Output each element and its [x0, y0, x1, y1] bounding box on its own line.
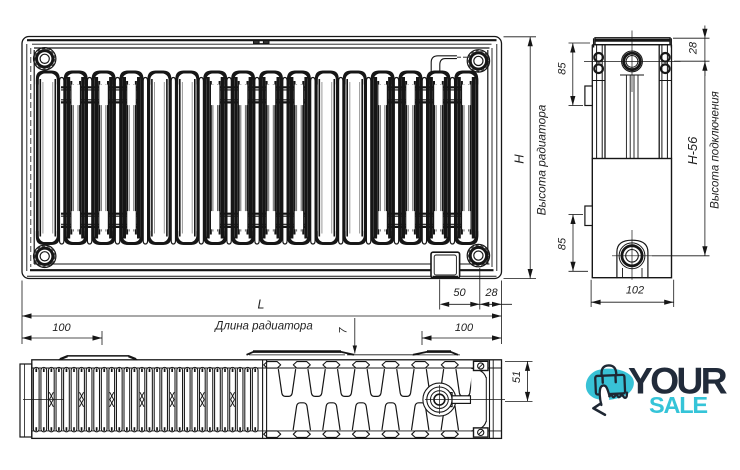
svg-text:H-56: H-56: [685, 136, 700, 165]
svg-text:100: 100: [455, 322, 474, 334]
svg-text:28: 28: [484, 287, 498, 299]
svg-text:51: 51: [511, 371, 523, 383]
svg-text:28: 28: [688, 41, 700, 55]
svg-text:50: 50: [453, 287, 466, 299]
svg-text:7: 7: [338, 327, 350, 334]
svg-text:Высота подключения: Высота подключения: [709, 91, 721, 209]
svg-text:Высота радиатора: Высота радиатора: [535, 104, 549, 215]
svg-text:85: 85: [556, 237, 568, 250]
svg-text:100: 100: [52, 322, 71, 334]
svg-text:L: L: [258, 298, 265, 312]
svg-text:Длина радиатора: Длина радиатора: [213, 321, 312, 333]
svg-text:H: H: [511, 154, 526, 164]
svg-text:SALE: SALE: [649, 392, 707, 418]
svg-text:102: 102: [626, 284, 644, 296]
svg-text:85: 85: [556, 62, 568, 75]
